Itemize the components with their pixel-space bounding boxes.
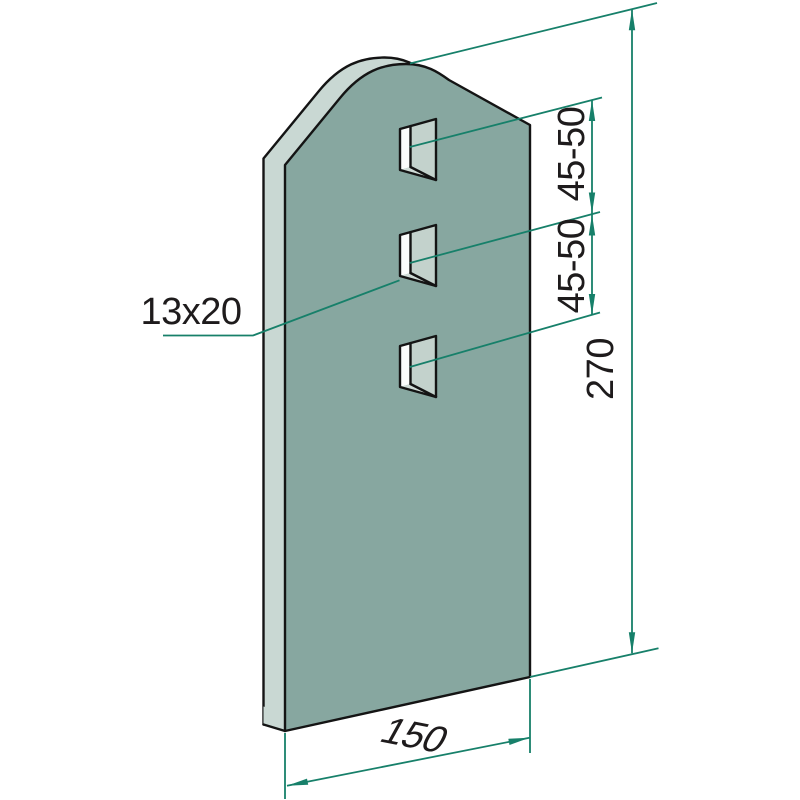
hole-top xyxy=(400,119,436,180)
arrow-height-bottom xyxy=(629,632,635,653)
hole-middle xyxy=(400,225,436,286)
arrow-height-top xyxy=(629,9,635,30)
plate-technical-drawing: 13x20 45-50 45-50 270 150 xyxy=(0,0,800,800)
arrow-width-left xyxy=(287,779,308,786)
label-plate-width: 150 xyxy=(373,711,455,761)
plate xyxy=(264,58,531,732)
label-hole-spacing-lower: 45-50 xyxy=(551,219,593,314)
extension-line-bottom-right xyxy=(530,648,659,677)
label-plate-height: 270 xyxy=(580,338,622,400)
label-hole-size: 13x20 xyxy=(140,291,241,333)
arrow-width-right xyxy=(508,738,529,745)
label-hole-spacing-upper: 45-50 xyxy=(551,107,593,202)
extension-line-apex xyxy=(410,3,657,64)
hole-bottom xyxy=(400,336,436,397)
drawing-canvas: 13x20 45-50 45-50 270 150 xyxy=(0,0,800,800)
